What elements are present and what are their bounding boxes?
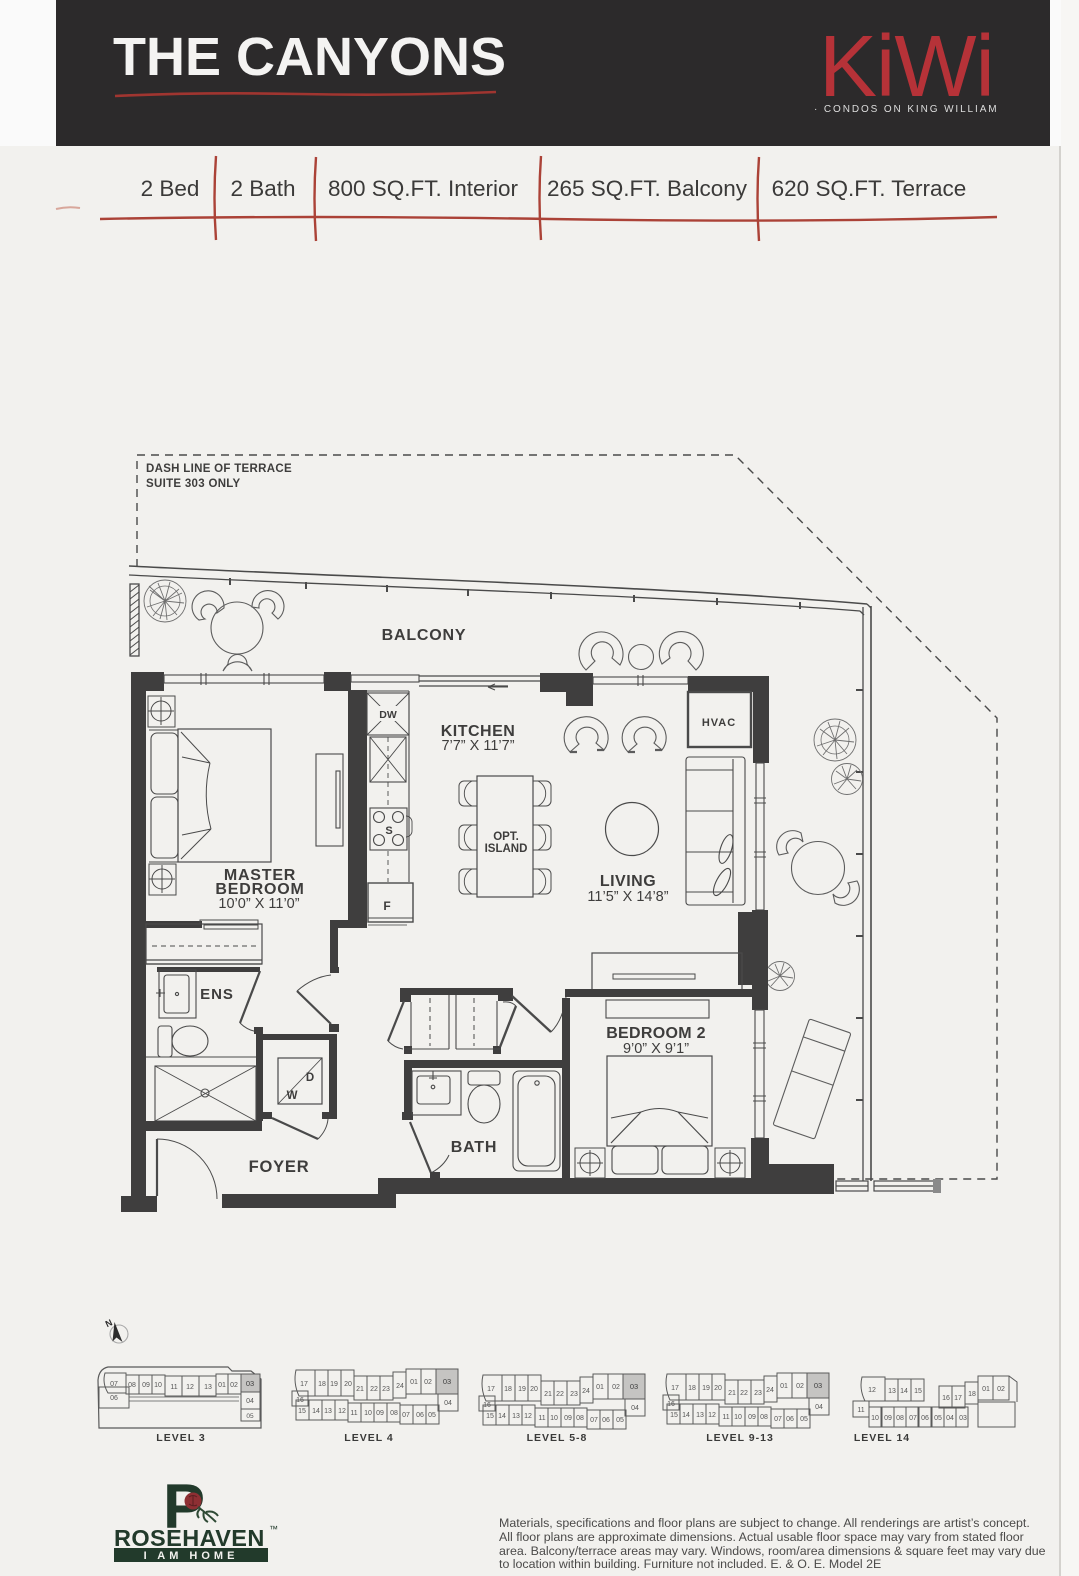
svg-text:16: 16 <box>942 1395 950 1402</box>
svg-text:KiWi: KiWi <box>819 18 994 115</box>
svg-text:03: 03 <box>246 1379 254 1388</box>
svg-text:11: 11 <box>538 1415 545 1422</box>
svg-text:05: 05 <box>934 1415 942 1422</box>
svg-text:9’0” X 9’1”: 9’0” X 9’1” <box>623 1041 689 1057</box>
svg-text:08: 08 <box>390 1410 398 1417</box>
svg-text:19: 19 <box>330 1381 338 1388</box>
svg-text:to location within building. F: to location within building. Furniture n… <box>499 1557 881 1571</box>
svg-text:02: 02 <box>997 1386 1005 1393</box>
svg-text:07: 07 <box>774 1416 782 1423</box>
svg-text:06: 06 <box>786 1416 794 1423</box>
svg-text:LIVING: LIVING <box>600 873 656 890</box>
svg-text:19: 19 <box>702 1385 710 1392</box>
svg-text:11: 11 <box>170 1384 177 1391</box>
svg-text:09: 09 <box>564 1415 572 1422</box>
svg-text:03: 03 <box>443 1377 451 1386</box>
svg-text:24: 24 <box>766 1387 774 1394</box>
svg-text:I AM HOME: I AM HOME <box>144 1550 239 1562</box>
svg-text:18: 18 <box>688 1385 696 1392</box>
svg-text:15: 15 <box>486 1413 494 1420</box>
svg-text:21: 21 <box>544 1391 552 1398</box>
svg-text:ISLAND: ISLAND <box>485 843 528 855</box>
svg-text:10’0” X 11’0”: 10’0” X 11’0” <box>218 896 299 912</box>
svg-text:800 SQ.FT. Interior: 800 SQ.FT. Interior <box>328 176 519 201</box>
svg-text:ENS: ENS <box>200 986 234 1003</box>
svg-text:23: 23 <box>570 1391 578 1398</box>
svg-text:ROSEHAVEN: ROSEHAVEN <box>114 1525 265 1551</box>
svg-text:02: 02 <box>796 1383 804 1390</box>
svg-text:15: 15 <box>670 1412 678 1419</box>
svg-text:OPT.: OPT. <box>493 831 519 843</box>
svg-text:19: 19 <box>518 1386 526 1393</box>
svg-text:13: 13 <box>888 1388 896 1395</box>
svg-text:2 Bath: 2 Bath <box>230 176 295 201</box>
svg-text:04: 04 <box>815 1404 823 1411</box>
svg-text:08: 08 <box>576 1415 584 1422</box>
svg-text:F: F <box>383 899 390 913</box>
svg-text:12: 12 <box>868 1387 876 1394</box>
svg-text:20: 20 <box>344 1381 352 1388</box>
svg-text:2 Bed: 2 Bed <box>141 176 200 201</box>
svg-text:11: 11 <box>722 1414 729 1421</box>
svg-text:08: 08 <box>760 1414 768 1421</box>
svg-text:18: 18 <box>318 1381 326 1388</box>
svg-text:05: 05 <box>246 1413 254 1420</box>
svg-text:18: 18 <box>504 1386 512 1393</box>
svg-text:W: W <box>287 1090 298 1102</box>
svg-text:All floor plans are approximat: All floor plans are approximate dimensio… <box>499 1530 1024 1544</box>
svg-text:DW: DW <box>379 709 397 721</box>
svg-text:20: 20 <box>530 1386 538 1393</box>
svg-text:10: 10 <box>550 1415 558 1422</box>
svg-text:Materials, specifications and: Materials, specifications and floor plan… <box>499 1516 1030 1530</box>
svg-text:23: 23 <box>382 1386 390 1393</box>
svg-text:06: 06 <box>921 1415 929 1422</box>
svg-text:13: 13 <box>324 1408 332 1415</box>
svg-text:14: 14 <box>498 1413 506 1420</box>
svg-text:10: 10 <box>871 1415 879 1422</box>
svg-text:17: 17 <box>671 1385 679 1392</box>
svg-text:09: 09 <box>376 1410 384 1417</box>
svg-text:09: 09 <box>748 1414 756 1421</box>
svg-text:11’5” X 14’8”: 11’5” X 14’8” <box>587 889 668 905</box>
svg-text:14: 14 <box>900 1388 908 1395</box>
svg-text:10: 10 <box>154 1382 162 1389</box>
svg-text:01: 01 <box>982 1386 990 1393</box>
svg-text:01: 01 <box>780 1383 788 1390</box>
svg-text:02: 02 <box>230 1382 238 1389</box>
svg-text:BATH: BATH <box>451 1139 497 1156</box>
svg-text:04: 04 <box>246 1398 254 1405</box>
svg-text:09: 09 <box>142 1382 150 1389</box>
svg-text:03: 03 <box>630 1382 638 1391</box>
svg-text:12: 12 <box>524 1413 532 1420</box>
svg-text:03: 03 <box>959 1415 967 1422</box>
svg-text:03: 03 <box>814 1381 822 1390</box>
svg-text:05: 05 <box>428 1412 436 1419</box>
svg-text:13: 13 <box>512 1413 520 1420</box>
svg-text:15: 15 <box>914 1388 922 1395</box>
svg-text:12: 12 <box>338 1408 346 1415</box>
svg-text:11: 11 <box>857 1407 864 1414</box>
svg-text:HVAC: HVAC <box>702 717 736 729</box>
svg-text:10: 10 <box>734 1414 742 1421</box>
svg-text:07: 07 <box>909 1415 917 1422</box>
svg-text:LEVEL 4: LEVEL 4 <box>344 1432 393 1444</box>
svg-text:FOYER: FOYER <box>249 1158 310 1176</box>
svg-text:13: 13 <box>696 1412 704 1419</box>
svg-text:· CONDOS ON KING WILLIAM: · CONDOS ON KING WILLIAM <box>814 104 999 115</box>
svg-text:11: 11 <box>350 1410 357 1417</box>
svg-text:22: 22 <box>370 1386 378 1393</box>
svg-text:LEVEL 9-13: LEVEL 9-13 <box>706 1432 774 1444</box>
svg-text:265 SQ.FT. Balcony: 265 SQ.FT. Balcony <box>547 176 748 201</box>
svg-text:24: 24 <box>582 1388 590 1395</box>
svg-text:17: 17 <box>300 1381 308 1388</box>
svg-text:™: ™ <box>269 1524 278 1534</box>
svg-text:SUITE 303 ONLY: SUITE 303 ONLY <box>146 478 241 490</box>
svg-text:07: 07 <box>402 1412 410 1419</box>
svg-text:18: 18 <box>968 1391 976 1398</box>
svg-text:area. Balcony/terrace areas ma: area. Balcony/terrace areas may vary. Wi… <box>499 1544 1046 1558</box>
svg-text:10: 10 <box>364 1410 372 1417</box>
svg-text:7’7” X 11’7”: 7’7” X 11’7” <box>441 738 514 754</box>
svg-text:12: 12 <box>708 1412 716 1419</box>
svg-text:06: 06 <box>602 1417 610 1424</box>
svg-text:14: 14 <box>682 1412 690 1419</box>
svg-text:17: 17 <box>487 1386 495 1393</box>
svg-text:02: 02 <box>612 1384 620 1391</box>
svg-text:BALCONY: BALCONY <box>382 627 467 644</box>
svg-text:08: 08 <box>896 1415 904 1422</box>
svg-text:22: 22 <box>556 1391 564 1398</box>
svg-text:06: 06 <box>416 1412 424 1419</box>
svg-text:LEVEL 3: LEVEL 3 <box>156 1432 205 1444</box>
svg-text:LEVEL 5-8: LEVEL 5-8 <box>527 1432 588 1444</box>
svg-text:20: 20 <box>714 1385 722 1392</box>
svg-text:01: 01 <box>410 1379 418 1386</box>
svg-text:17: 17 <box>954 1395 962 1402</box>
svg-text:01: 01 <box>596 1384 604 1391</box>
svg-text:620 SQ.FT. Terrace: 620 SQ.FT. Terrace <box>772 176 967 201</box>
svg-text:13: 13 <box>204 1384 212 1391</box>
svg-text:01: 01 <box>218 1382 226 1389</box>
svg-text:04: 04 <box>946 1415 954 1422</box>
svg-text:06: 06 <box>110 1395 118 1402</box>
svg-text:BEDROOM 2: BEDROOM 2 <box>606 1025 706 1042</box>
svg-text:THE CANYONS: THE CANYONS <box>113 27 506 87</box>
svg-text:24: 24 <box>396 1383 404 1390</box>
svg-text:21: 21 <box>728 1390 736 1397</box>
svg-text:14: 14 <box>312 1408 320 1415</box>
svg-text:04: 04 <box>444 1400 452 1407</box>
svg-text:04: 04 <box>631 1405 639 1412</box>
svg-text:12: 12 <box>186 1384 194 1391</box>
svg-text:02: 02 <box>424 1379 432 1386</box>
svg-text:S: S <box>385 825 392 837</box>
svg-text:21: 21 <box>356 1386 364 1393</box>
svg-text:07: 07 <box>590 1417 598 1424</box>
svg-text:15: 15 <box>298 1408 306 1415</box>
svg-text:23: 23 <box>754 1390 762 1397</box>
svg-text:09: 09 <box>884 1415 892 1422</box>
svg-text:D: D <box>306 1072 314 1084</box>
svg-text:LEVEL 14: LEVEL 14 <box>854 1432 910 1444</box>
svg-text:05: 05 <box>616 1417 624 1424</box>
svg-text:DASH LINE OF TERRACE: DASH LINE OF TERRACE <box>146 463 292 475</box>
svg-text:22: 22 <box>740 1390 748 1397</box>
svg-text:05: 05 <box>800 1416 808 1423</box>
